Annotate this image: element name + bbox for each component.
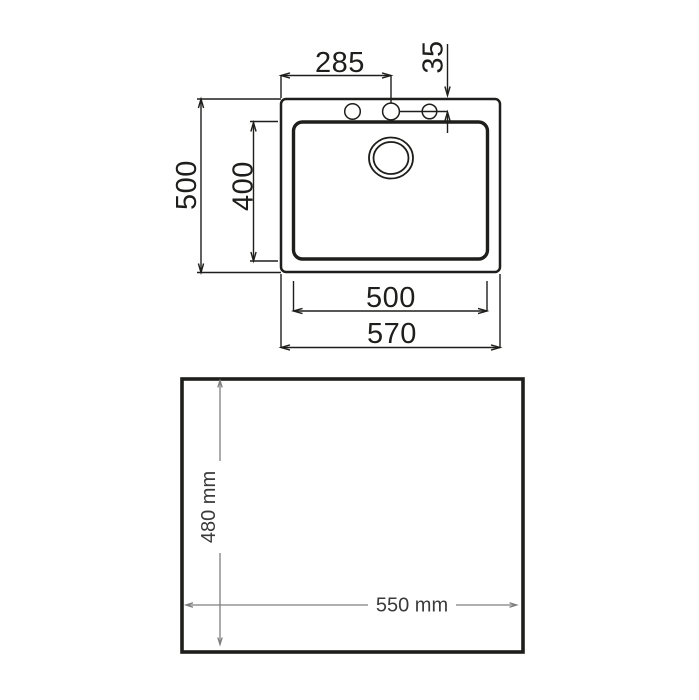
dimension-bowl-depth: 400 bbox=[228, 122, 279, 262]
dim-label-480mm-cutout-depth: 480 mm bbox=[198, 471, 220, 543]
technical-drawing-page: 285 35 500 bbox=[0, 0, 699, 700]
worktop-cutout-view: 480 mm 550 mm bbox=[182, 379, 523, 652]
dim-label-400-bowl-depth: 400 bbox=[228, 161, 260, 211]
dim-label-570-overall-width: 570 bbox=[367, 318, 417, 350]
dim-label-550mm-cutout-width: 550 mm bbox=[376, 595, 448, 617]
dim-label-35: 35 bbox=[418, 40, 450, 73]
cutout-outline bbox=[182, 379, 523, 652]
dim-label-285: 285 bbox=[315, 47, 365, 79]
dim-label-500-depth: 500 bbox=[171, 160, 203, 210]
dimension-faucet-span: 285 bbox=[281, 47, 391, 104]
dim-label-500-bowl-width: 500 bbox=[366, 282, 416, 314]
drawing-canvas: 285 35 500 bbox=[0, 0, 699, 700]
faucet-hole-left bbox=[345, 104, 361, 120]
sink-top-view: 285 35 500 bbox=[171, 40, 500, 350]
dimension-bowl-width: 500 bbox=[294, 281, 488, 314]
dimension-overall-depth: 500 bbox=[171, 99, 281, 273]
faucet-hole-center bbox=[383, 103, 400, 120]
